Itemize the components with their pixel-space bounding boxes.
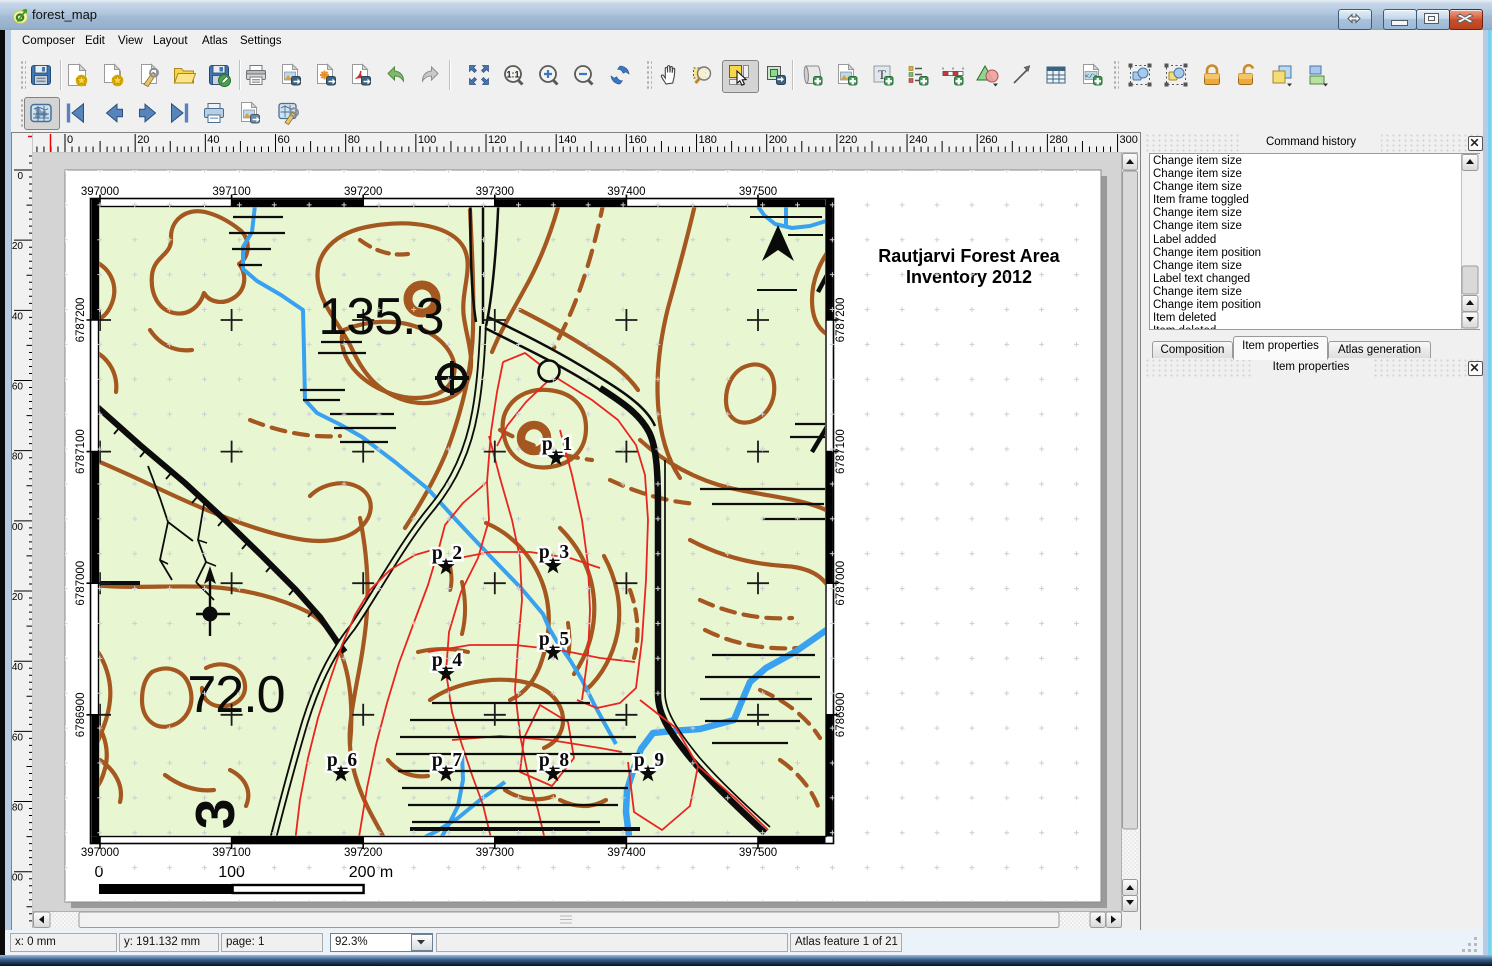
svg-text:200: 200 (12, 873, 23, 884)
svg-text:180: 180 (12, 803, 23, 814)
svg-text:60: 60 (12, 382, 23, 393)
svg-text:260: 260 (979, 134, 997, 146)
svg-text:0: 0 (17, 171, 23, 182)
svg-text:1:1: 1:1 (506, 70, 519, 80)
svg-text:40: 40 (12, 311, 23, 322)
svg-text:280: 280 (1049, 134, 1067, 146)
svg-text:240: 240 (909, 134, 927, 146)
svg-text:100: 100 (418, 134, 436, 146)
svg-text:160: 160 (12, 732, 23, 743)
svg-text:220: 220 (839, 134, 857, 146)
svg-text:0: 0 (67, 134, 73, 146)
svg-text:20: 20 (137, 134, 149, 146)
svg-text:40: 40 (207, 134, 219, 146)
svg-text:120: 120 (12, 592, 23, 603)
svg-text:140: 140 (12, 662, 23, 673)
svg-text:160: 160 (628, 134, 646, 146)
svg-text:180: 180 (699, 134, 717, 146)
svg-text:100: 100 (12, 522, 23, 533)
svg-text:140: 140 (558, 134, 576, 146)
svg-text:120: 120 (488, 134, 506, 146)
svg-text:20: 20 (12, 241, 23, 252)
svg-text:80: 80 (12, 452, 23, 463)
svg-text:80: 80 (348, 134, 360, 146)
svg-text:200: 200 (769, 134, 787, 146)
svg-text:300: 300 (1120, 134, 1138, 146)
svg-text:60: 60 (278, 134, 290, 146)
